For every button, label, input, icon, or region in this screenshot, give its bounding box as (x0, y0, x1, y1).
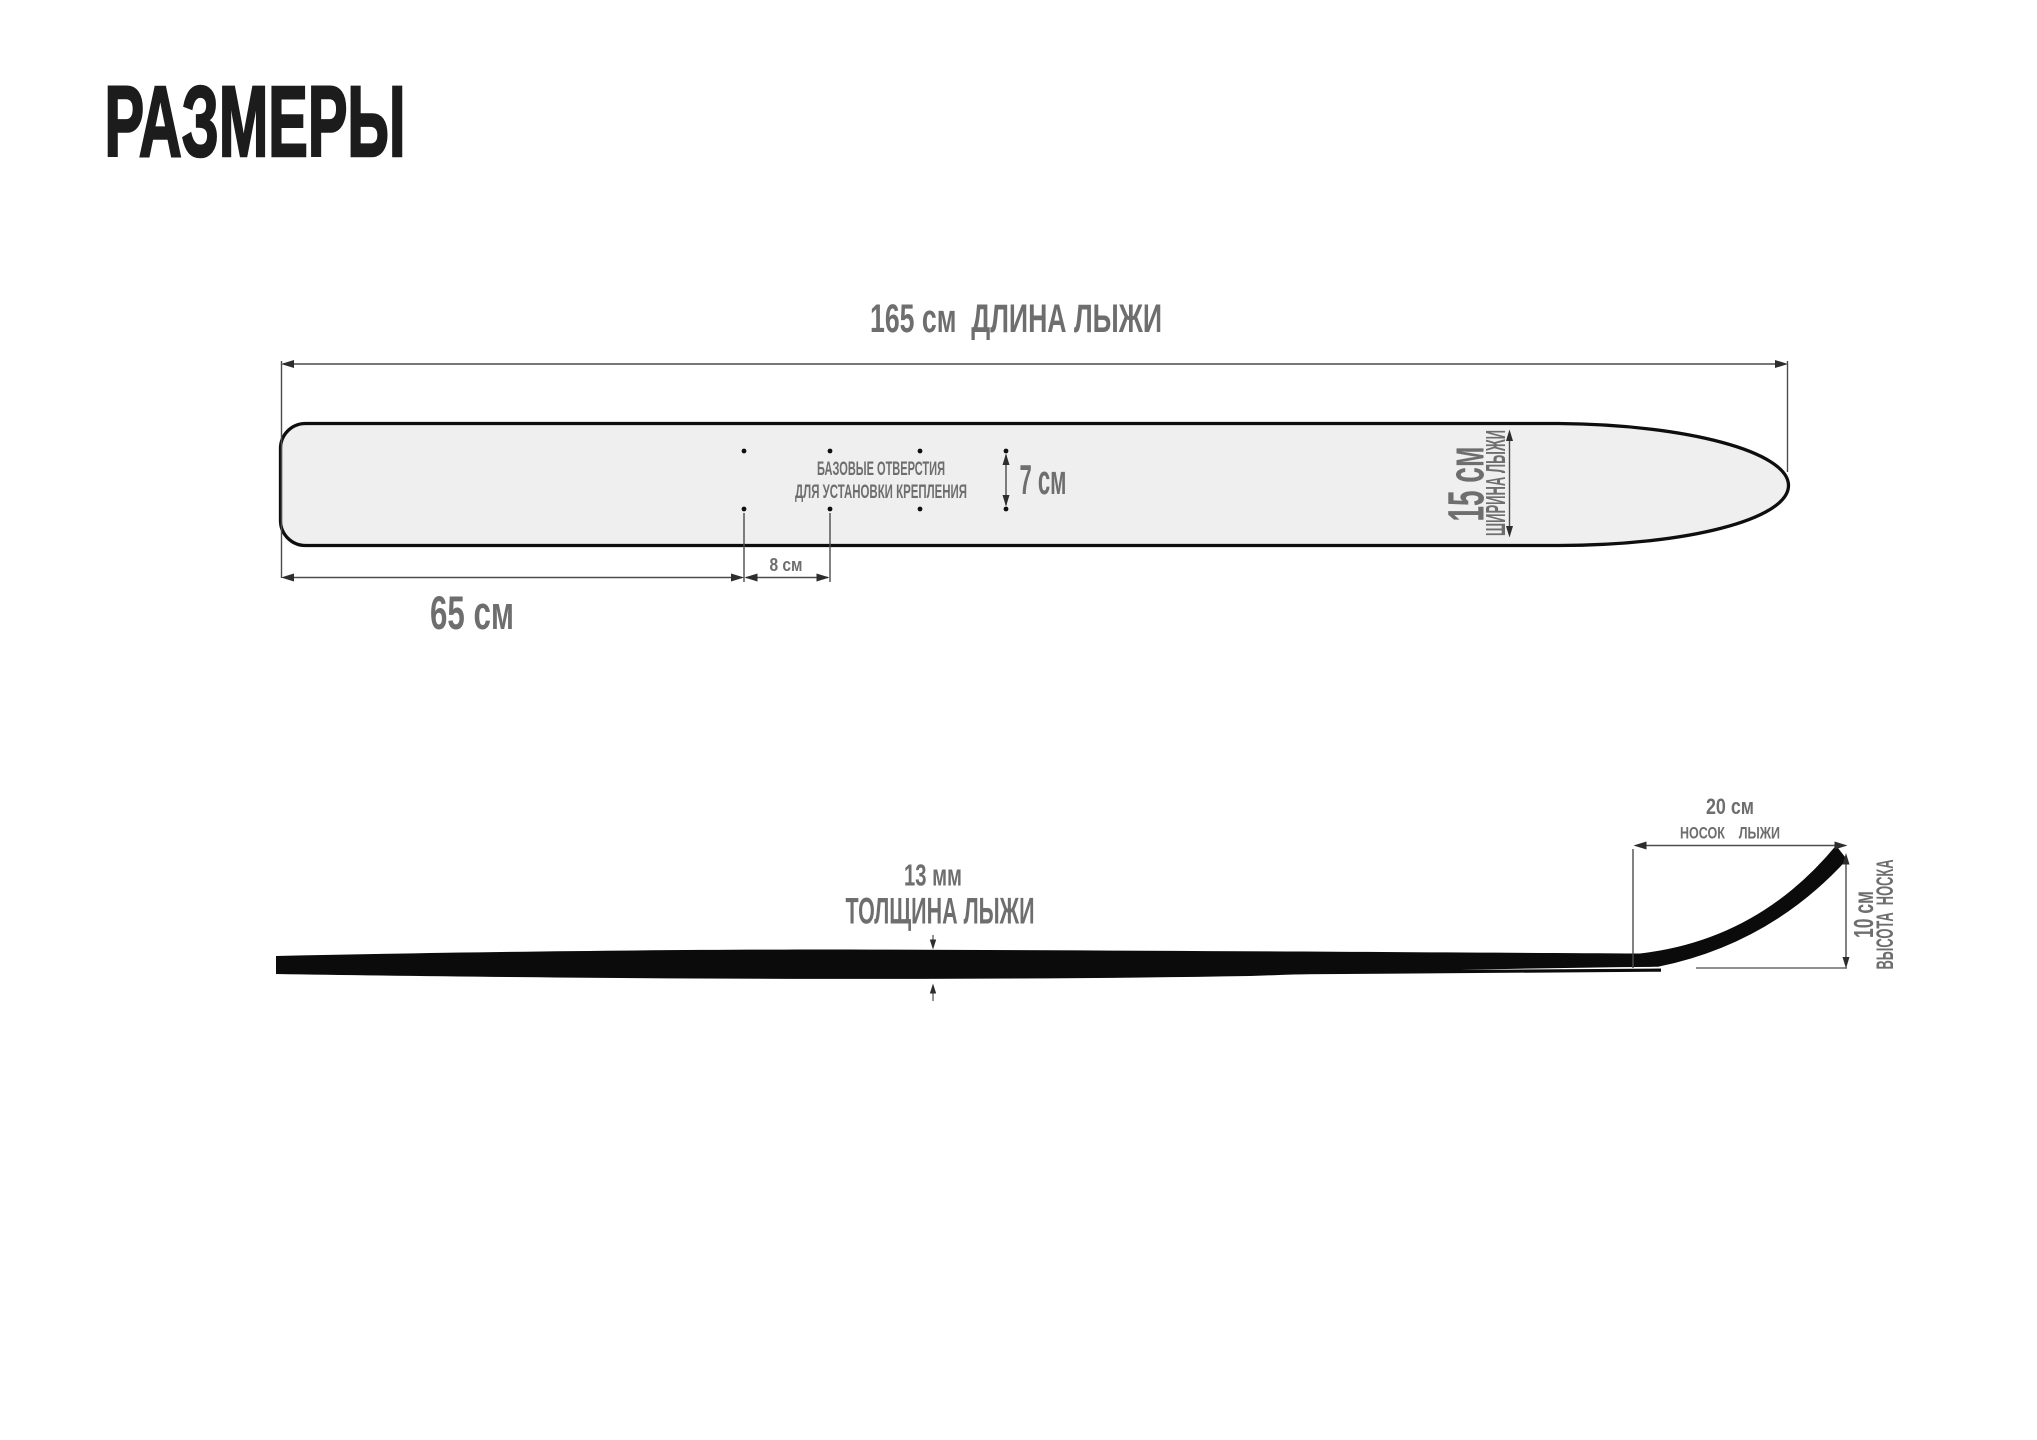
svg-text:20 см: 20 см (1706, 794, 1754, 819)
svg-text:13 мм: 13 мм (904, 859, 962, 893)
svg-text:165 см ДЛИНА ЛЫЖИ: 165 см ДЛИНА ЛЫЖИ (870, 297, 1162, 341)
svg-text:ТОЛЩИНА ЛЫЖИ: ТОЛЩИНА ЛЫЖИ (846, 890, 1035, 932)
svg-text:ДЛЯ УСТАНОВКИ КРЕПЛЕНИЯ: ДЛЯ УСТАНОВКИ КРЕПЛЕНИЯ (795, 482, 967, 503)
svg-text:РАЗМЕРЫ: РАЗМЕРЫ (105, 66, 406, 178)
svg-text:ВЫСОТА НОСКА: ВЫСОТА НОСКА (1872, 859, 1899, 969)
svg-text:7 см: 7 см (1020, 456, 1067, 503)
svg-text:ШИРИНА ЛЫЖИ: ШИРИНА ЛЫЖИ (1480, 430, 1511, 536)
svg-text:8 см: 8 см (770, 555, 803, 576)
svg-text:НОСОК ЛЫЖИ: НОСОК ЛЫЖИ (1680, 824, 1780, 843)
svg-text:БАЗОВЫЕ ОТВЕРСТИЯ: БАЗОВЫЕ ОТВЕРСТИЯ (817, 459, 945, 480)
svg-text:65 см: 65 см (430, 586, 514, 639)
